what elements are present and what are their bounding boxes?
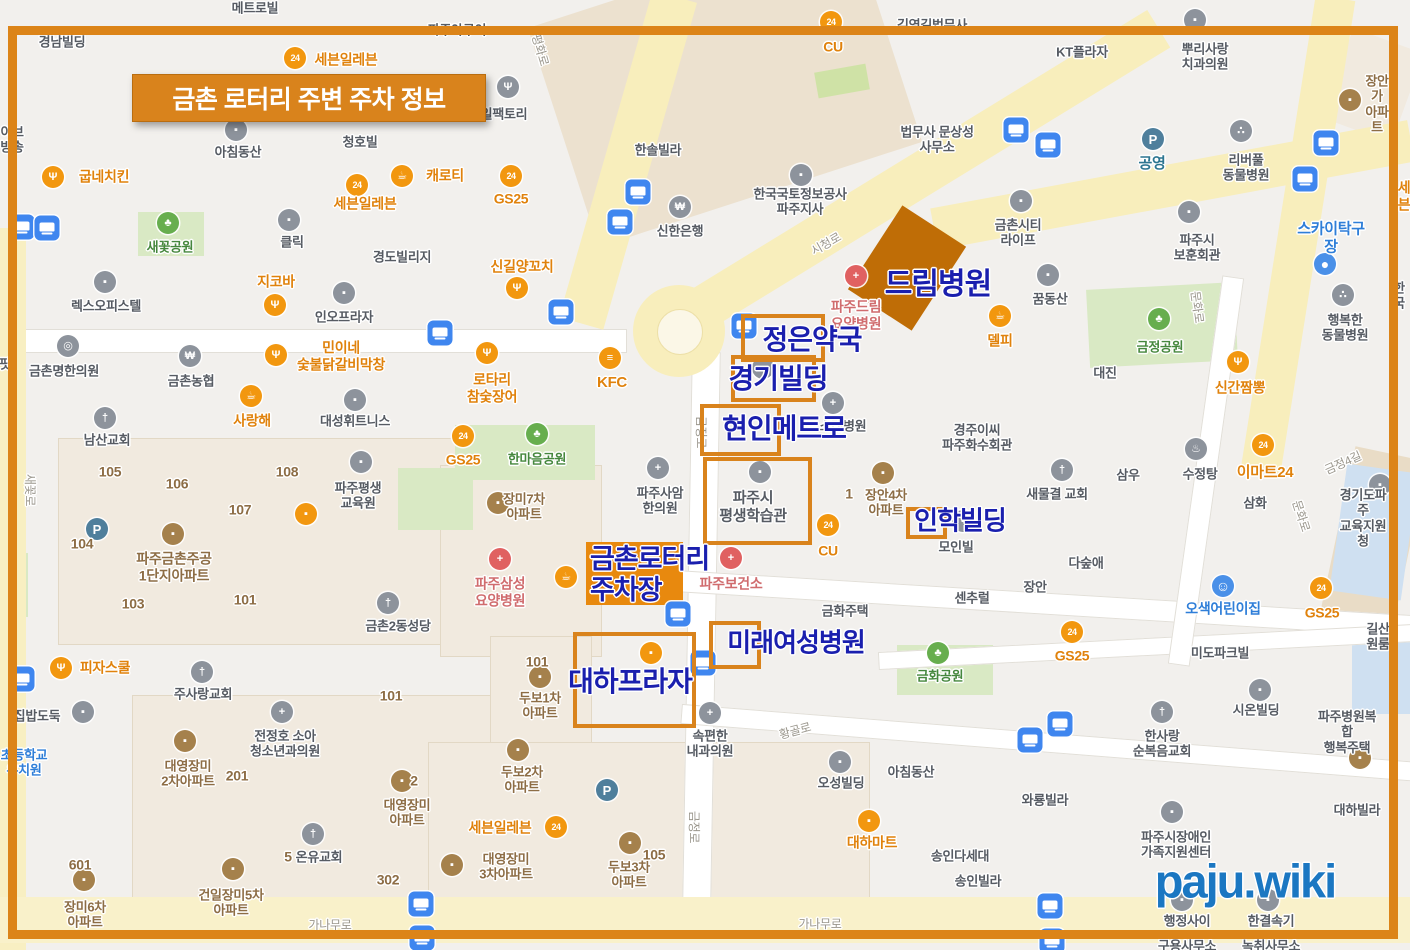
poi-icon[interactable]: 24 [545, 816, 567, 838]
poi-icon[interactable]: 24 [452, 425, 474, 447]
poi-icon[interactable]: ♣ [157, 212, 179, 234]
poi-label[interactable]: 2 [410, 773, 418, 790]
poi-label[interactable]: 로타리 참숯장어 [467, 371, 517, 404]
poi-icon[interactable]: ▪ [1010, 190, 1032, 212]
poi-label[interactable]: 대영장미 3차아파트 [479, 852, 533, 883]
watermark-paju-wiki: paju.wiki [1155, 854, 1336, 909]
poi-label[interactable]: 파주금촌주공 1단지아파트 [136, 550, 211, 583]
poi-icon[interactable]: 24 [346, 174, 368, 196]
poi-label[interactable]: 601 [69, 857, 91, 874]
poi-label[interactable]: 피자스쿨 [80, 660, 130, 677]
poi-label[interactable]: 센추럴 [955, 590, 990, 605]
poi-label[interactable]: 다숲애 [1069, 555, 1104, 570]
poi-icon[interactable]: ▪ [441, 854, 463, 876]
poi-label[interactable]: 한솔빌라 [635, 142, 682, 157]
poi-icon[interactable]: † [377, 592, 399, 614]
jeongeun-pharmacy-label: 정은약국 [762, 318, 861, 358]
poi-icon[interactable]: ▪ [1037, 264, 1059, 286]
poi-label[interactable]: GS25 [1055, 648, 1090, 665]
poi-label[interactable]: 105 [643, 847, 665, 864]
poi-icon[interactable]: ▪ [1249, 679, 1271, 701]
poi-label[interactable]: 핏 [0, 356, 11, 371]
road-yellow [0, 228, 26, 950]
poi-icon[interactable]: ∴ [1332, 284, 1354, 306]
bus-stop-icon[interactable] [608, 210, 633, 235]
poi-label[interactable]: 캐로티 [426, 168, 464, 185]
poi-icon[interactable]: ∴ [1230, 120, 1252, 142]
poi-label[interactable]: 104 [71, 536, 93, 553]
poi-label[interactable]: 꿈동산 [1033, 291, 1068, 306]
poi-label[interactable]: 공영 [1138, 155, 1165, 173]
poi-label[interactable]: 두보1차 아파트 [519, 691, 561, 722]
poi-label[interactable]: 리버풀 동물병원 [1223, 153, 1270, 184]
poi-label[interactable]: 금촌시티 라이프 [995, 218, 1042, 249]
poi-label[interactable]: 속편한 내과의원 [687, 729, 734, 760]
poi-icon[interactable]: ▪ [94, 271, 116, 293]
poi-label[interactable]: 파주삼성 요양병원 [475, 575, 525, 608]
dream-hospital-label: 드림병원 [885, 259, 991, 303]
poi-icon[interactable]: † [1051, 459, 1073, 481]
poi-label[interactable]: 두보3차 아파트 [608, 860, 650, 891]
poi-label[interactable]: 한국국토정보공사 파주지사 [753, 187, 846, 218]
bus-stop-icon[interactable] [409, 892, 434, 917]
poi-icon[interactable]: + [845, 265, 867, 287]
poi-icon[interactable]: ▪ [872, 462, 894, 484]
poi-icon[interactable]: ☕ [391, 165, 413, 187]
poi-label[interactable]: CU [818, 543, 838, 560]
poi-label[interactable]: 행복한 동물병원 [1322, 313, 1369, 344]
road-label: 문화로 [1289, 498, 1312, 533]
poi-label[interactable]: 신길양꼬치 [491, 259, 554, 276]
poi-icon[interactable]: ▪ [222, 858, 244, 880]
poi-label[interactable]: 구용사무소 [1158, 938, 1216, 950]
poi-label[interactable]: 법무사 문상성 사무소 [900, 125, 973, 156]
poi-label[interactable]: 대하빌라 [1334, 802, 1381, 817]
poi-label[interactable]: 주사랑교회 [174, 686, 232, 701]
poi-label[interactable]: 세븐일레븐 [315, 52, 378, 69]
poi-icon[interactable]: 24 [1252, 434, 1274, 456]
hyunin-metro-label: 현인메트로 [722, 407, 846, 447]
poi-icon[interactable]: ☺ [1212, 575, 1234, 597]
poi-label[interactable]: 삼화 [1243, 495, 1266, 510]
poi-label[interactable]: 델피 [987, 333, 1012, 350]
poi-icon[interactable]: ▪ [507, 739, 529, 761]
road-label: 금정로 [687, 811, 701, 843]
poi-label[interactable]: 수정탕 [1183, 466, 1218, 481]
poi-icon[interactable]: ☕ [240, 385, 262, 407]
poi-label[interactable]: 106 [166, 476, 188, 493]
poi-label[interactable]: 201 [226, 768, 248, 785]
road-label: 새꽃로 [23, 474, 37, 506]
bus-stop-icon[interactable] [549, 300, 574, 325]
poi-label[interactable]: 장미6차 아파트 [64, 900, 106, 931]
poi-icon[interactable]: Ψ [42, 166, 64, 188]
poi-label[interactable]: 1 [845, 486, 853, 503]
poi-icon[interactable]: Ψ [506, 277, 528, 299]
poi-label[interactable]: 302 [377, 872, 399, 889]
poi-label[interactable]: 한결속기 [1248, 913, 1295, 928]
poi-label[interactable]: 김영길법무사 [897, 17, 967, 32]
bus-stop-icon[interactable] [1048, 712, 1073, 737]
poi-label[interactable]: 105 [99, 464, 121, 481]
poi-label[interactable]: 신한은행 [657, 223, 704, 238]
park-area [398, 468, 473, 530]
poi-label[interactable]: 지코바 [257, 274, 295, 291]
bus-stop-icon[interactable] [1018, 728, 1043, 753]
poi-icon[interactable]: ☕ [555, 566, 577, 588]
poi-label[interactable]: 금촌농협 [168, 373, 215, 388]
poi-icon[interactable]: P [1142, 128, 1164, 150]
poi-label[interactable]: 초등학교 유치원 [1, 748, 48, 779]
poi-icon[interactable]: Ψ [50, 657, 72, 679]
poi-label[interactable]: 경도빌리지 [373, 249, 431, 264]
poi-label[interactable]: 아침동산 [215, 144, 262, 159]
poi-label[interactable]: 파주아구이 [428, 22, 486, 37]
poi-label[interactable]: 삼우 [1116, 467, 1139, 482]
poi-label[interactable]: 새물결 교회 [1026, 486, 1088, 501]
road-white [878, 624, 1410, 670]
bus-stop-icon[interactable] [1004, 118, 1029, 143]
daeha-plaza-label: 대하프라자 [568, 660, 692, 700]
poi-icon[interactable]: ♣ [1148, 308, 1170, 330]
poi-label[interactable]: 세븐일레븐 [469, 820, 532, 837]
poi-icon[interactable]: Ψ [265, 344, 287, 366]
poi-label[interactable]: 장안가 아파트 [1361, 73, 1394, 134]
poi-icon[interactable]: 24 [820, 11, 842, 33]
poi-label[interactable]: 시온빌딩 [1233, 702, 1280, 717]
poi-label[interactable]: 한국 [1393, 281, 1405, 312]
poi-icon[interactable]: ▪ [1184, 9, 1206, 31]
poi-label[interactable]: 집밥도둑 [14, 708, 61, 723]
poi-icon[interactable]: + [489, 548, 511, 570]
poi-label[interactable]: 107 [229, 502, 251, 519]
poi-label[interactable]: 길산원룸 [1362, 622, 1394, 653]
bus-stop-icon[interactable] [410, 926, 435, 950]
poi-label[interactable]: 세븐일레븐 [334, 196, 397, 213]
poi-label[interactable]: 온유교회 [296, 849, 343, 864]
poi-label[interactable]: 이브 방송 [0, 125, 23, 156]
poi-label[interactable]: 금촌2동성당 [365, 618, 430, 633]
poi-label[interactable]: KFC [597, 374, 627, 392]
poi-icon[interactable]: ♣ [927, 642, 949, 664]
poi-label[interactable]: 대성휘트니스 [320, 413, 390, 428]
poi-label[interactable]: 대진 [1093, 365, 1116, 380]
poi-icon[interactable]: + [271, 701, 293, 723]
poi-icon[interactable]: ▪ [829, 751, 851, 773]
poi-label[interactable]: 101 [234, 592, 256, 609]
bus-stop-icon[interactable] [1314, 131, 1339, 156]
bus-stop-icon[interactable] [1038, 894, 1063, 919]
poi-icon[interactable]: † [1151, 701, 1173, 723]
poi-label[interactable]: 경주이씨 파주화수회관 [942, 423, 1012, 454]
poi-icon[interactable]: 24 [284, 47, 306, 69]
poi-label[interactable]: 대영장미 아파트 [384, 798, 431, 829]
poi-icon[interactable]: ▪ [1339, 89, 1361, 111]
bus-stop-icon[interactable] [10, 667, 35, 692]
poi-label[interactable]: KT플라자 [1056, 44, 1108, 59]
poi-label[interactable]: 전정호 소아 청소년과의원 [250, 729, 320, 760]
poi-icon[interactable]: † [302, 823, 324, 845]
poi-label[interactable]: 경기도파주 교육지원청 [1340, 487, 1387, 548]
poi-icon[interactable]: ≡ [599, 347, 621, 369]
poi-label[interactable]: 금촌명한의원 [29, 363, 99, 378]
poi-label[interactable]: 대하마트 [847, 835, 897, 852]
poi-label[interactable]: GS25 [494, 191, 529, 208]
annotation-title: 금촌 로터리 주변 주차 정보 [132, 74, 486, 122]
poi-icon[interactable]: ♣ [526, 423, 548, 445]
poi-icon[interactable]: ▪ [295, 503, 317, 525]
bus-stop-icon[interactable] [35, 216, 60, 241]
poi-label[interactable]: 민이네 숯불닭갈비막창 [297, 339, 385, 372]
poi-label[interactable]: 일팩토리 [481, 106, 528, 121]
poi-icon[interactable]: Ψ [264, 294, 286, 316]
poi-label[interactable]: 두보2차 아파트 [501, 765, 543, 796]
poi-label[interactable]: 메트로빌 [232, 0, 279, 15]
poi-label[interactable]: 파주시 보훈회관 [1174, 233, 1221, 264]
poi-icon[interactable]: Ψ [476, 342, 498, 364]
poi-label[interactable]: 청호빌 [343, 134, 378, 149]
poi-label[interactable]: 장미7차 아파트 [503, 492, 545, 523]
poi-icon[interactable]: P [596, 779, 618, 801]
poi-icon[interactable]: ▪ [344, 389, 366, 411]
poi-icon[interactable]: † [191, 661, 213, 683]
poi-label[interactable]: 108 [276, 464, 298, 481]
poi-icon[interactable]: 24 [500, 165, 522, 187]
road-label: 가나무로 [309, 918, 352, 932]
poi-label[interactable]: 송인다세대 [931, 848, 989, 863]
poi-label[interactable]: 경남빌딩 [39, 34, 86, 49]
poi-icon[interactable]: ▪ [619, 832, 641, 854]
poi-icon[interactable]: ♨ [1185, 438, 1207, 460]
bus-stop-icon[interactable] [428, 321, 453, 346]
poi-label[interactable]: 건일장미5차 아파트 [198, 888, 263, 919]
poi-icon[interactable]: ▪ [278, 209, 300, 231]
poi-icon[interactable]: ▪ [1161, 801, 1183, 823]
poi-label[interactable]: 남산교회 [84, 432, 131, 447]
bus-stop-icon[interactable] [626, 180, 651, 205]
poi-label[interactable]: 파주병원복합 행복주택 [1316, 709, 1379, 755]
poi-icon[interactable]: ▪ [1178, 201, 1200, 223]
poi-label[interactable]: 파주평생 교육원 [335, 481, 382, 512]
lifelong-learning-center-box [703, 457, 812, 545]
poi-label[interactable]: GS25 [1305, 605, 1340, 622]
poi-label[interactable]: 오성빌딩 [818, 775, 865, 790]
poi-label[interactable]: 신간짬뽕 [1215, 380, 1265, 397]
poi-label[interactable]: 대영장미 2차아파트 [161, 759, 215, 790]
poi-label[interactable]: 파주사암 한의원 [637, 486, 684, 517]
poi-icon[interactable]: ▪ [790, 164, 812, 186]
poi-icon[interactable]: ▪ [333, 282, 355, 304]
rotary-island [657, 309, 703, 355]
poi-icon[interactable]: + [699, 702, 721, 724]
poi-icon[interactable]: 24 [1310, 577, 1332, 599]
poi-icon[interactable]: + [647, 457, 669, 479]
poi-icon[interactable]: ▪ [350, 451, 372, 473]
poi-icon[interactable]: + [720, 547, 742, 569]
poi-icon[interactable]: ₩ [179, 345, 201, 367]
bus-stop-icon[interactable] [1036, 133, 1061, 158]
poi-label[interactable]: 이마트24 [1237, 464, 1294, 482]
poi-icon[interactable]: ▪ [162, 523, 184, 545]
poi-icon[interactable]: Ψ [1227, 351, 1249, 373]
poi-label[interactable]: 굽네치킨 [79, 169, 129, 186]
poi-label[interactable]: 와룡빌라 [1022, 792, 1069, 807]
poi-icon[interactable]: ☕ [989, 305, 1011, 327]
poi-icon[interactable]: ▪ [858, 810, 880, 832]
poi-label[interactable]: 모인빌 [939, 539, 974, 554]
poi-label[interactable]: 금화주택 [822, 603, 869, 618]
poi-icon[interactable]: 24 [1061, 621, 1083, 643]
poi-label[interactable]: 사랑해 [233, 413, 271, 430]
parking-lot-label: 금촌로터리 주차장 [590, 544, 709, 606]
poi-icon[interactable]: ₩ [669, 196, 691, 218]
road-label: 가나무로 [799, 917, 842, 931]
poi-label[interactable]: 오색어린이집 [1185, 601, 1260, 618]
poi-label[interactable]: 미도파크빌 [1191, 645, 1249, 660]
poi-label[interactable]: 새꽃공원 [147, 239, 194, 254]
poi-label[interactable]: 스카이탁구장 [1292, 220, 1371, 255]
poi-label[interactable]: 행정사이 [1164, 913, 1211, 928]
poi-label[interactable]: 인오프라자 [315, 309, 373, 324]
poi-icon[interactable]: 24 [817, 514, 839, 536]
poi-label[interactable]: 103 [122, 596, 144, 613]
poi-label[interactable]: 녹취사무소 [1242, 938, 1300, 950]
poi-icon[interactable]: † [94, 407, 116, 429]
poi-label[interactable]: 클릭 [280, 234, 303, 249]
poi-icon[interactable]: ▪ [225, 119, 247, 141]
poi-label[interactable]: 한마음공원 [508, 451, 566, 466]
poi-label[interactable]: 장안4차 아파트 [865, 488, 907, 519]
poi-icon[interactable]: ▪ [174, 730, 196, 752]
poi-label[interactable]: 101 [380, 688, 402, 705]
poi-label[interactable]: GS25 [446, 452, 481, 469]
mirae-womens-hospital-label: 미래여성병원 [727, 623, 865, 660]
poi-label[interactable]: 101 [526, 654, 548, 671]
poi-label[interactable]: 세븐 [1398, 179, 1410, 212]
bus-stop-icon[interactable] [1040, 929, 1065, 950]
poi-label[interactable]: 렉스오피스텔 [71, 298, 141, 313]
map-canvas[interactable]: 금촌로터리 주차장 금촌 로터리 주변 주차 정보 paju.wiki PPP▪… [0, 0, 1410, 950]
gyeonggi-building-label: 경기빌딩 [728, 357, 827, 397]
poi-label[interactable]: CU [823, 39, 843, 56]
poi-label[interactable]: 한사랑 순복음교회 [1133, 729, 1191, 760]
poi-label[interactable]: 송인빌라 [955, 873, 1002, 888]
poi-label[interactable]: 뿌리사랑 치과의원 [1182, 42, 1229, 73]
poi-icon[interactable]: ● [1314, 253, 1336, 275]
bus-stop-icon[interactable] [10, 215, 35, 240]
poi-icon[interactable]: ◎ [57, 335, 79, 357]
poi-label[interactable]: 금화공원 [917, 668, 964, 683]
poi-label[interactable]: 금정공원 [1137, 339, 1184, 354]
inhak-building-label: 인학빌딩 [914, 501, 1006, 538]
poi-label[interactable]: 아침동산 [888, 764, 935, 779]
bus-stop-icon[interactable] [1293, 167, 1318, 192]
poi-icon[interactable]: Ψ [497, 76, 519, 98]
poi-label[interactable]: 5 [284, 849, 292, 866]
poi-icon[interactable]: ▪ [72, 701, 94, 723]
poi-label[interactable]: 장안 [1023, 579, 1046, 594]
